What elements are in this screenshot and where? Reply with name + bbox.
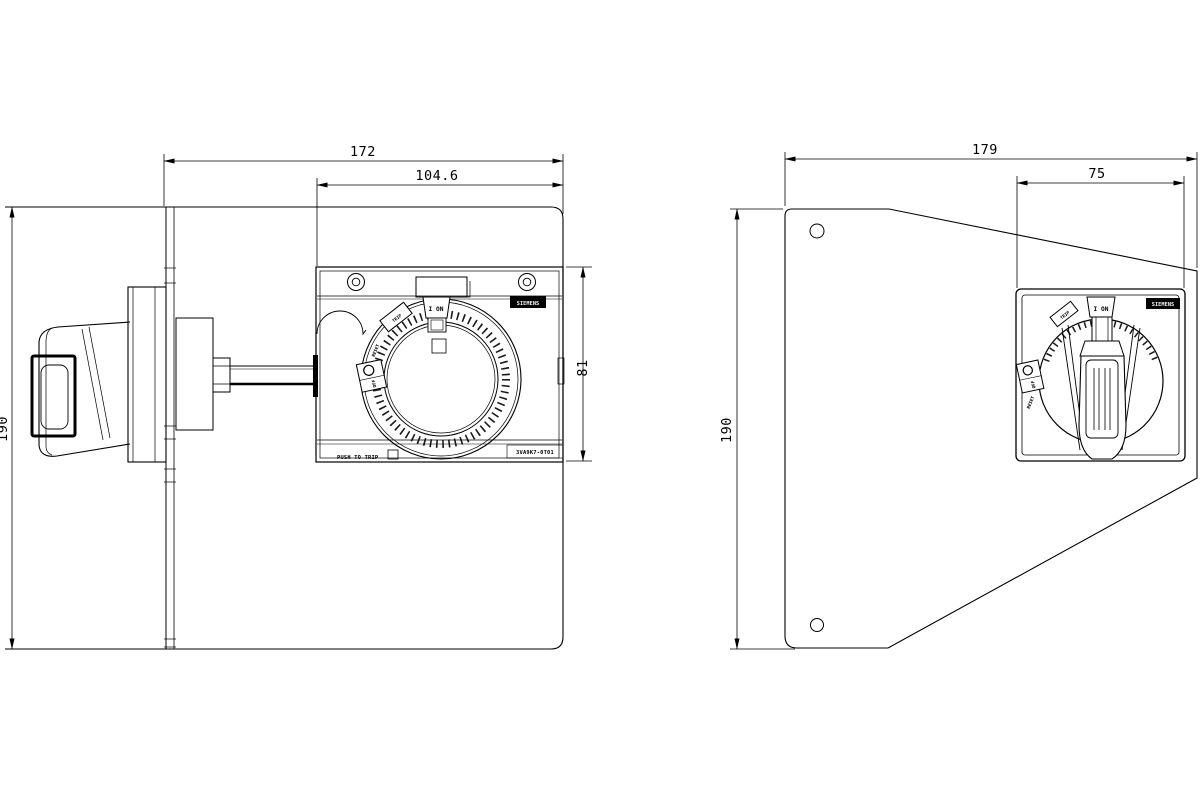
dim-label-172: 172 [350,144,376,160]
position-off: OFF [356,360,386,393]
position-on-right: I ON [1087,297,1115,317]
brand-label-right: SIEMENS [1152,302,1175,308]
dim-label-75: 75 [1088,166,1105,182]
dim-label-190-left: 190 [0,416,11,442]
brand-label: SIEMENS [517,301,540,307]
dim-label-81: 81 [575,359,591,376]
on-label-right: I ON [1094,306,1109,313]
siemens-logo-right: SIEMENS [1146,298,1180,309]
dim-label-179: 179 [972,142,998,158]
paper-background [0,0,1200,800]
dim-label-190-right: 190 [719,417,735,443]
dimensional-drawing: 172 104.6 81 190 [0,0,1200,800]
siemens-logo: SIEMENS [510,296,546,308]
on-label: I ON [429,306,444,313]
dim-label-104-6: 104.6 [415,168,458,184]
push-to-trip-label: PUSH TO TRIP [337,455,379,461]
part-number-label: 3VA9K7-0T01 [516,450,554,456]
technical-drawing-page: 172 104.6 81 190 [0,0,1200,800]
